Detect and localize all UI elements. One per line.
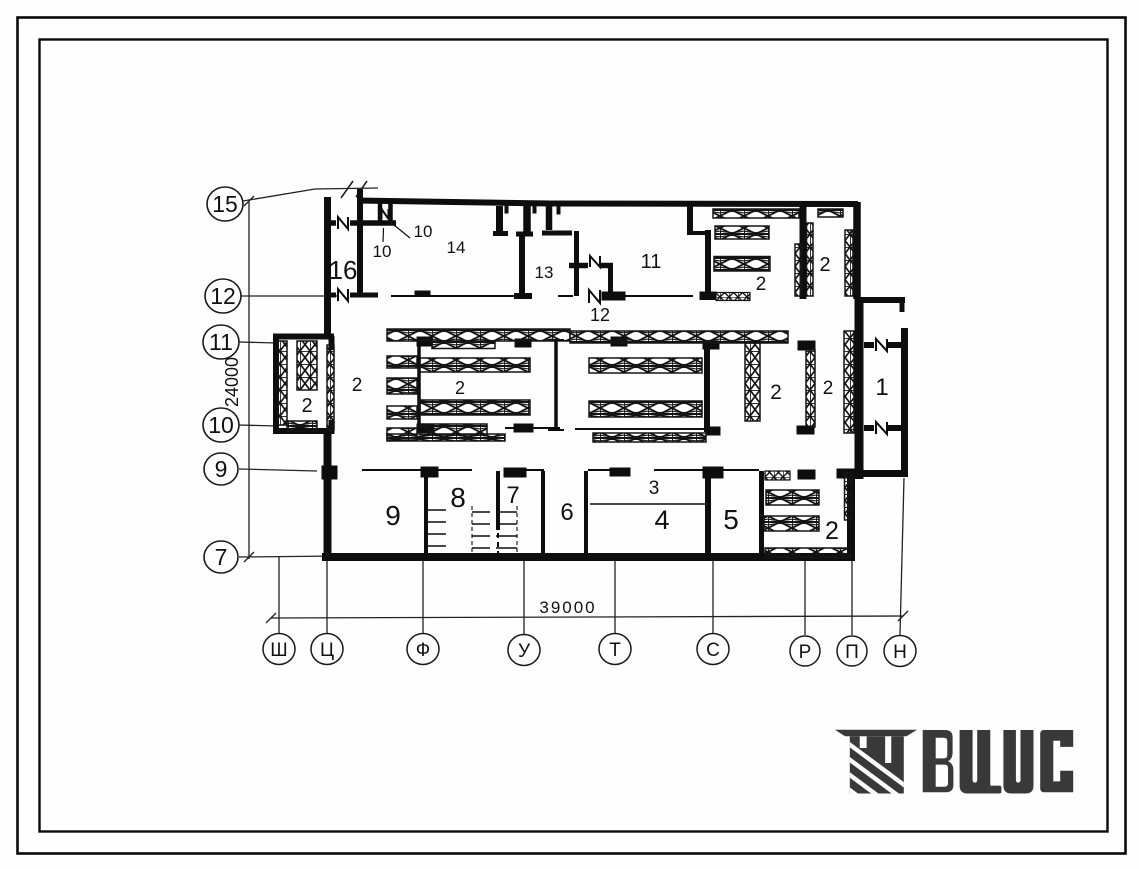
svg-text:Ф: Ф — [416, 640, 430, 661]
svg-text:1: 1 — [875, 374, 888, 401]
svg-text:2: 2 — [825, 517, 839, 545]
svg-text:П: П — [845, 642, 859, 663]
svg-text:6: 6 — [560, 499, 573, 526]
svg-text:3: 3 — [649, 478, 660, 499]
svg-text:2: 2 — [455, 378, 465, 398]
svg-text:Р: Р — [799, 642, 812, 663]
svg-text:16: 16 — [329, 255, 358, 285]
svg-text:10: 10 — [373, 242, 392, 261]
svg-text:2: 2 — [301, 395, 312, 417]
svg-text:13: 13 — [535, 263, 554, 282]
svg-text:12: 12 — [210, 283, 236, 309]
svg-text:10: 10 — [208, 412, 234, 438]
svg-text:2: 2 — [819, 254, 830, 276]
svg-text:9: 9 — [385, 500, 401, 531]
svg-text:14: 14 — [447, 238, 466, 257]
svg-text:24000: 24000 — [222, 357, 242, 407]
svg-text:7: 7 — [506, 482, 519, 509]
svg-text:7: 7 — [215, 544, 228, 570]
svg-text:Ц: Ц — [320, 640, 334, 661]
svg-text:12: 12 — [590, 305, 610, 325]
svg-text:2: 2 — [352, 375, 363, 396]
svg-text:15: 15 — [212, 191, 238, 217]
svg-text:10: 10 — [414, 222, 433, 241]
svg-text:Ш: Ш — [270, 640, 287, 661]
svg-text:9: 9 — [215, 456, 228, 482]
svg-text:Т: Т — [609, 640, 621, 661]
svg-text:39000: 39000 — [539, 598, 596, 617]
svg-text:11: 11 — [641, 251, 662, 273]
svg-text:2: 2 — [756, 274, 767, 295]
svg-text:У: У — [518, 641, 531, 662]
svg-text:5: 5 — [723, 504, 739, 535]
svg-text:8: 8 — [450, 482, 466, 513]
svg-text:2: 2 — [770, 381, 782, 404]
svg-text:2: 2 — [823, 378, 834, 399]
svg-text:11: 11 — [209, 329, 233, 355]
svg-text:Н: Н — [893, 642, 907, 663]
svg-text:4: 4 — [654, 505, 669, 535]
svg-text:С: С — [706, 640, 720, 661]
